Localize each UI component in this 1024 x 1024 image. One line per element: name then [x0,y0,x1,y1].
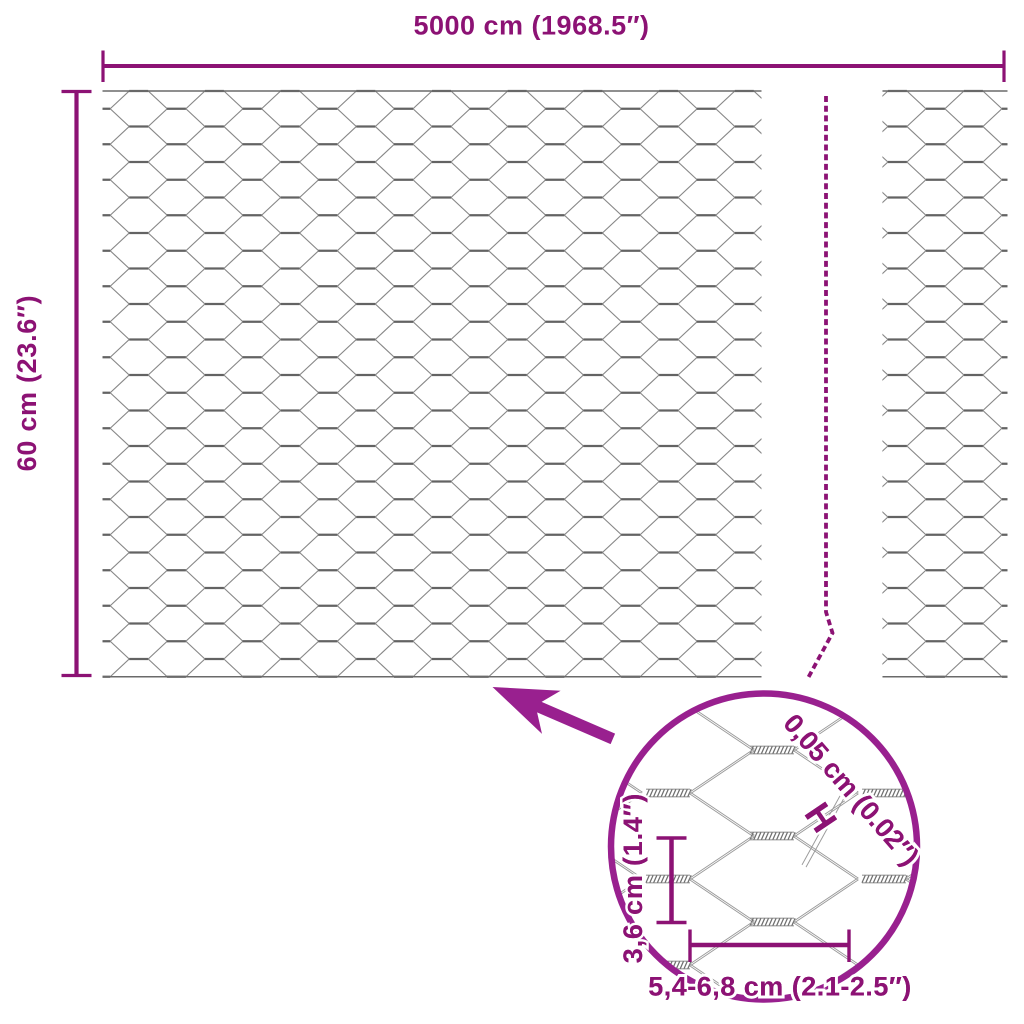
svg-text:3,6 cm (1.4″): 3,6 cm (1.4″) [618,793,648,963]
svg-text:5000 cm (1968.5″): 5000 cm (1968.5″) [413,11,649,41]
svg-text:5,4-6,8 cm (2.1-2.5″): 5,4-6,8 cm (2.1-2.5″) [648,972,912,1002]
svg-text:60 cm (23.6″): 60 cm (23.6″) [12,295,42,472]
